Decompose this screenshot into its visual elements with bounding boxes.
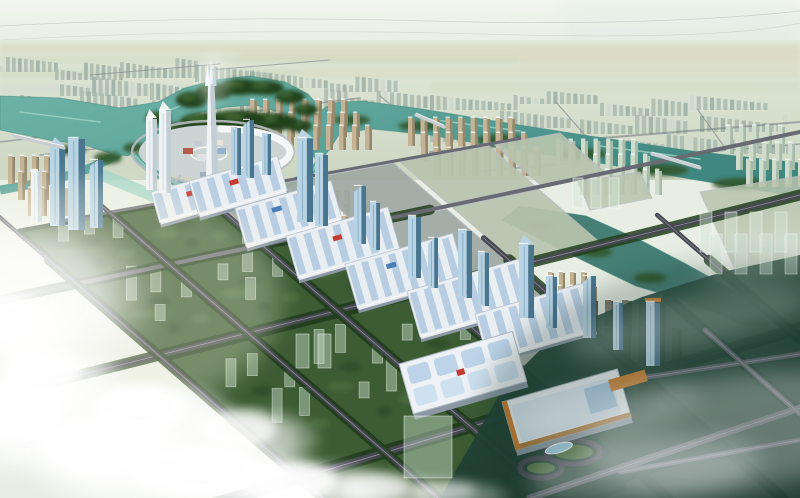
- city-masterplan-aerial-render: [0, 0, 800, 498]
- render-canvas: [0, 0, 800, 498]
